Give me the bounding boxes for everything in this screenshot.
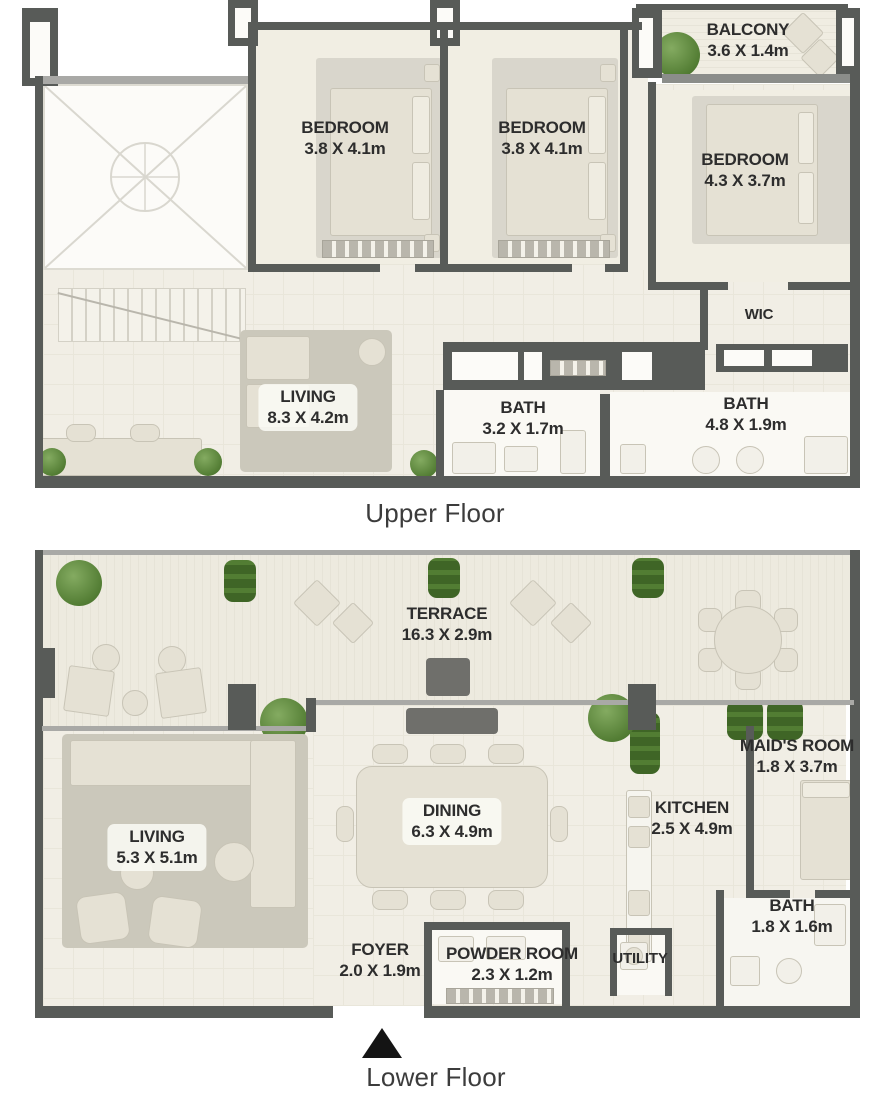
lower-floor-caption: Lower Floor xyxy=(366,1062,505,1093)
wall xyxy=(850,550,860,1018)
room-label-dining: DINING 6.3 X 4.9m xyxy=(402,798,501,845)
room-name: LIVING xyxy=(116,827,197,848)
wall xyxy=(228,684,256,730)
armchair-icon xyxy=(75,891,131,945)
dining-chair-icon xyxy=(372,744,408,764)
entry-cabinet-icon xyxy=(446,988,554,1004)
wall xyxy=(35,648,55,698)
room-name: BEDROOM xyxy=(498,118,585,139)
wall xyxy=(424,1006,860,1018)
room-name: MAID'S ROOM xyxy=(740,736,854,757)
hedge-icon xyxy=(727,700,763,740)
dining-chair-icon xyxy=(372,890,408,910)
room-name: DINING xyxy=(411,801,492,822)
room-name: BATH xyxy=(482,398,563,419)
room-name: KITCHEN xyxy=(651,798,732,819)
room-dims: 6.3 X 4.9m xyxy=(411,822,492,843)
dining-chair-icon xyxy=(430,890,466,910)
wall xyxy=(35,1006,333,1018)
hedge-icon xyxy=(224,560,256,602)
room-label-terrace: TERRACE 16.3 X 2.9m xyxy=(402,604,492,645)
room-name: POWDER ROOM xyxy=(446,944,578,965)
bbq-grill-icon xyxy=(426,658,470,696)
hedge-icon xyxy=(767,700,803,740)
wall xyxy=(424,922,570,930)
lounger-icon xyxy=(155,667,207,719)
room-name: WIC xyxy=(745,306,774,324)
sink-icon xyxy=(628,826,650,848)
wall xyxy=(628,684,656,730)
dining-chair-icon xyxy=(488,890,524,910)
wall xyxy=(610,928,672,935)
room-dims: 4.3 X 3.7m xyxy=(701,171,788,192)
room-name: BALCONY xyxy=(707,20,790,41)
floor-plan-page: BALCONY 3.6 X 1.4m BEDROOM 3.8 X 4.1m BE… xyxy=(0,0,885,1100)
room-dims: 1.8 X 3.7m xyxy=(740,757,854,778)
room-dims: 3.8 X 4.1m xyxy=(498,139,585,160)
room-dims: 2.0 X 1.9m xyxy=(339,961,420,982)
hedge-icon xyxy=(428,558,460,598)
window-band xyxy=(42,726,308,731)
room-name: FOYER xyxy=(339,940,420,961)
sofa-icon xyxy=(250,740,296,908)
room-dims: 3.6 X 1.4m xyxy=(707,41,790,62)
room-label-bedroom-2: BEDROOM 3.8 X 4.1m xyxy=(498,118,585,159)
wall xyxy=(716,890,724,1006)
sink-icon xyxy=(776,958,802,984)
dining-chair-icon xyxy=(430,744,466,764)
room-dims: 8.3 X 4.2m xyxy=(267,408,348,429)
outdoor-table-icon xyxy=(700,592,796,688)
oven-icon xyxy=(628,890,650,916)
room-dims: 3.8 X 4.1m xyxy=(301,139,388,160)
window-band xyxy=(308,700,854,705)
room-dims: 4.8 X 1.9m xyxy=(705,415,786,436)
sideboard-icon xyxy=(406,708,498,734)
room-label-powder-room: POWDER ROOM 2.3 X 1.2m xyxy=(446,944,578,985)
room-label-kitchen: KITCHEN 2.5 X 4.9m xyxy=(651,798,732,839)
room-label-bedroom-1: BEDROOM 3.8 X 4.1m xyxy=(301,118,388,159)
stool-icon xyxy=(122,690,148,716)
room-name: BEDROOM xyxy=(701,150,788,171)
room-label-balcony: BALCONY 3.6 X 1.4m xyxy=(707,20,790,61)
room-name: BATH xyxy=(751,896,832,917)
room-dims: 16.3 X 2.9m xyxy=(402,625,492,646)
room-label-bath-1: BATH 3.2 X 1.7m xyxy=(482,398,563,439)
hedge-icon xyxy=(632,558,664,598)
room-label-maids-room: MAID'S ROOM 1.8 X 3.7m xyxy=(740,736,854,777)
pillow-icon xyxy=(802,782,850,798)
room-dims: 1.8 X 1.6m xyxy=(751,917,832,938)
cooktop-icon xyxy=(628,796,650,818)
room-label-bedroom-3: BEDROOM 4.3 X 3.7m xyxy=(701,150,788,191)
room-dims: 2.3 X 1.2m xyxy=(446,965,578,986)
room-label-bath-lower: BATH 1.8 X 1.6m xyxy=(751,896,832,937)
room-name: TERRACE xyxy=(402,604,492,625)
room-label-wic: WIC xyxy=(745,306,774,324)
wall xyxy=(35,550,43,1018)
pouf-icon xyxy=(214,842,254,882)
room-label-utility: UTILITY xyxy=(612,950,667,968)
dining-chair-icon xyxy=(488,744,524,764)
room-dims: 5.3 X 5.1m xyxy=(116,848,197,869)
room-label-foyer: FOYER 2.0 X 1.9m xyxy=(339,940,420,981)
railing xyxy=(42,550,854,555)
toilet-icon xyxy=(730,956,760,986)
room-label-bath-2: BATH 4.8 X 1.9m xyxy=(705,394,786,435)
lounger-icon xyxy=(63,665,115,717)
room-name: BEDROOM xyxy=(301,118,388,139)
dining-chair-icon xyxy=(336,806,354,842)
room-name: UTILITY xyxy=(612,950,667,968)
upper-floor-caption: Upper Floor xyxy=(365,498,504,529)
wall xyxy=(306,698,316,732)
room-name: LIVING xyxy=(267,387,348,408)
tree-icon xyxy=(56,560,102,606)
room-label-living-upper: LIVING 8.3 X 4.2m xyxy=(258,384,357,431)
armchair-icon xyxy=(147,895,203,949)
room-label-living-lower: LIVING 5.3 X 5.1m xyxy=(107,824,206,871)
dining-chair-icon xyxy=(550,806,568,842)
room-dims: 2.5 X 4.9m xyxy=(651,819,732,840)
entrance-arrow-icon xyxy=(362,1028,402,1058)
wall xyxy=(424,922,432,1010)
room-dims: 3.2 X 1.7m xyxy=(482,419,563,440)
room-name: BATH xyxy=(705,394,786,415)
